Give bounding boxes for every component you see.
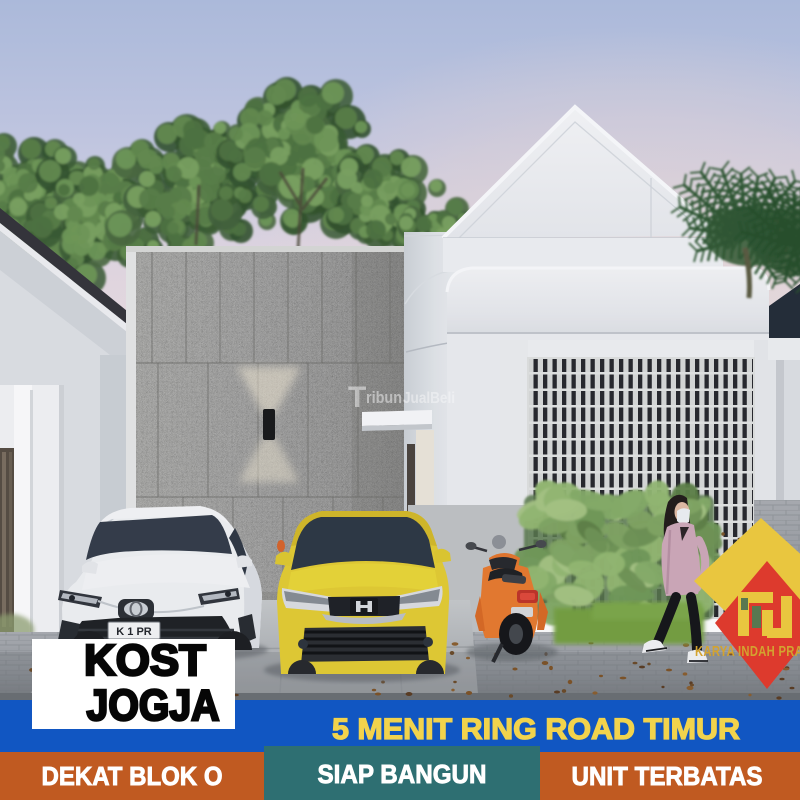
svg-text:DEKAT BLOK O: DEKAT BLOK O [42,761,223,791]
svg-text:SIAP BANGUN: SIAP BANGUN [318,759,487,789]
svg-text:JOGJA: JOGJA [87,681,220,730]
svg-text:KOST: KOST [84,636,206,685]
svg-text:5 MENIT RING ROAD TIMUR: 5 MENIT RING ROAD TIMUR [332,713,740,746]
svg-text:UNIT TERBATAS: UNIT TERBATAS [572,761,763,791]
